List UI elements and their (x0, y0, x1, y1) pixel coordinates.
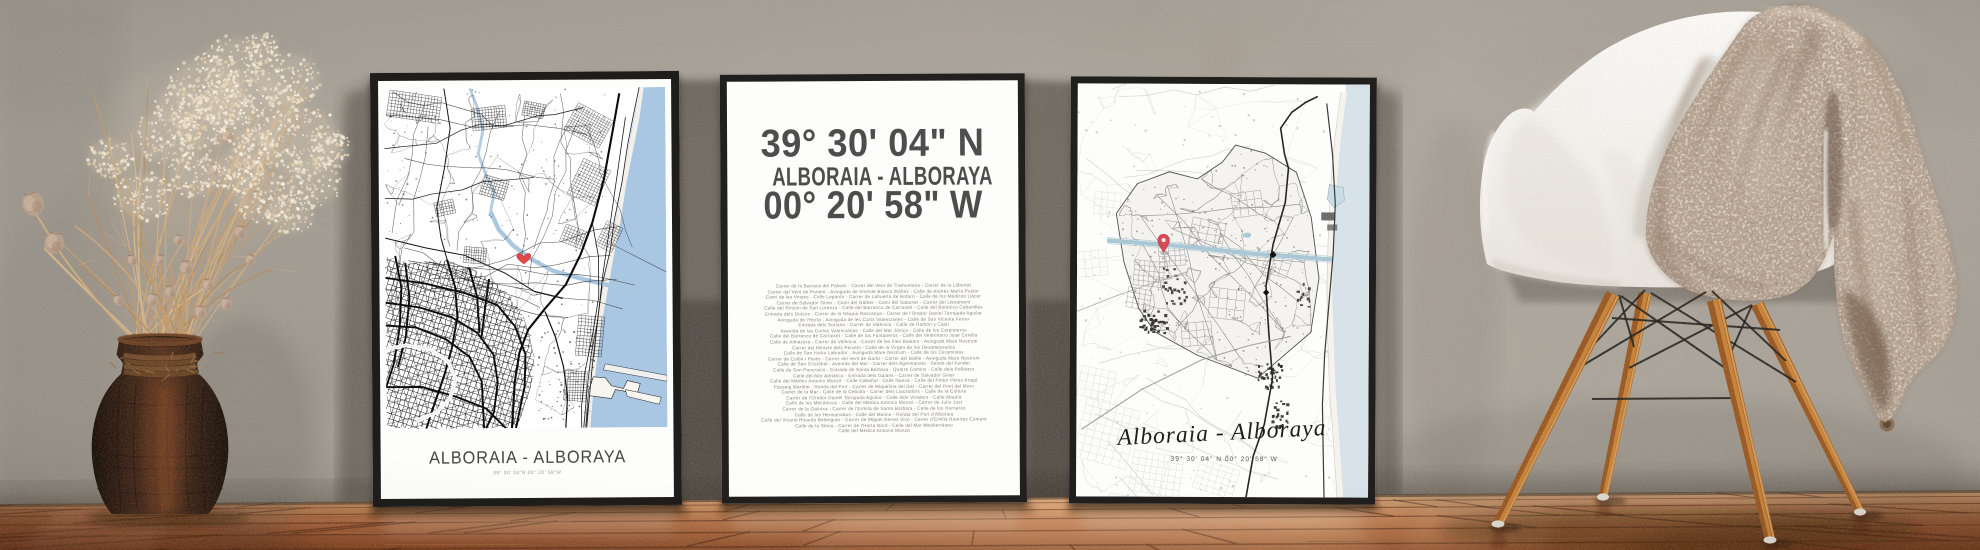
svg-text:39° 30' 04" N 00° 20' 58" W: 39° 30' 04" N 00° 20' 58" W (1171, 455, 1278, 463)
